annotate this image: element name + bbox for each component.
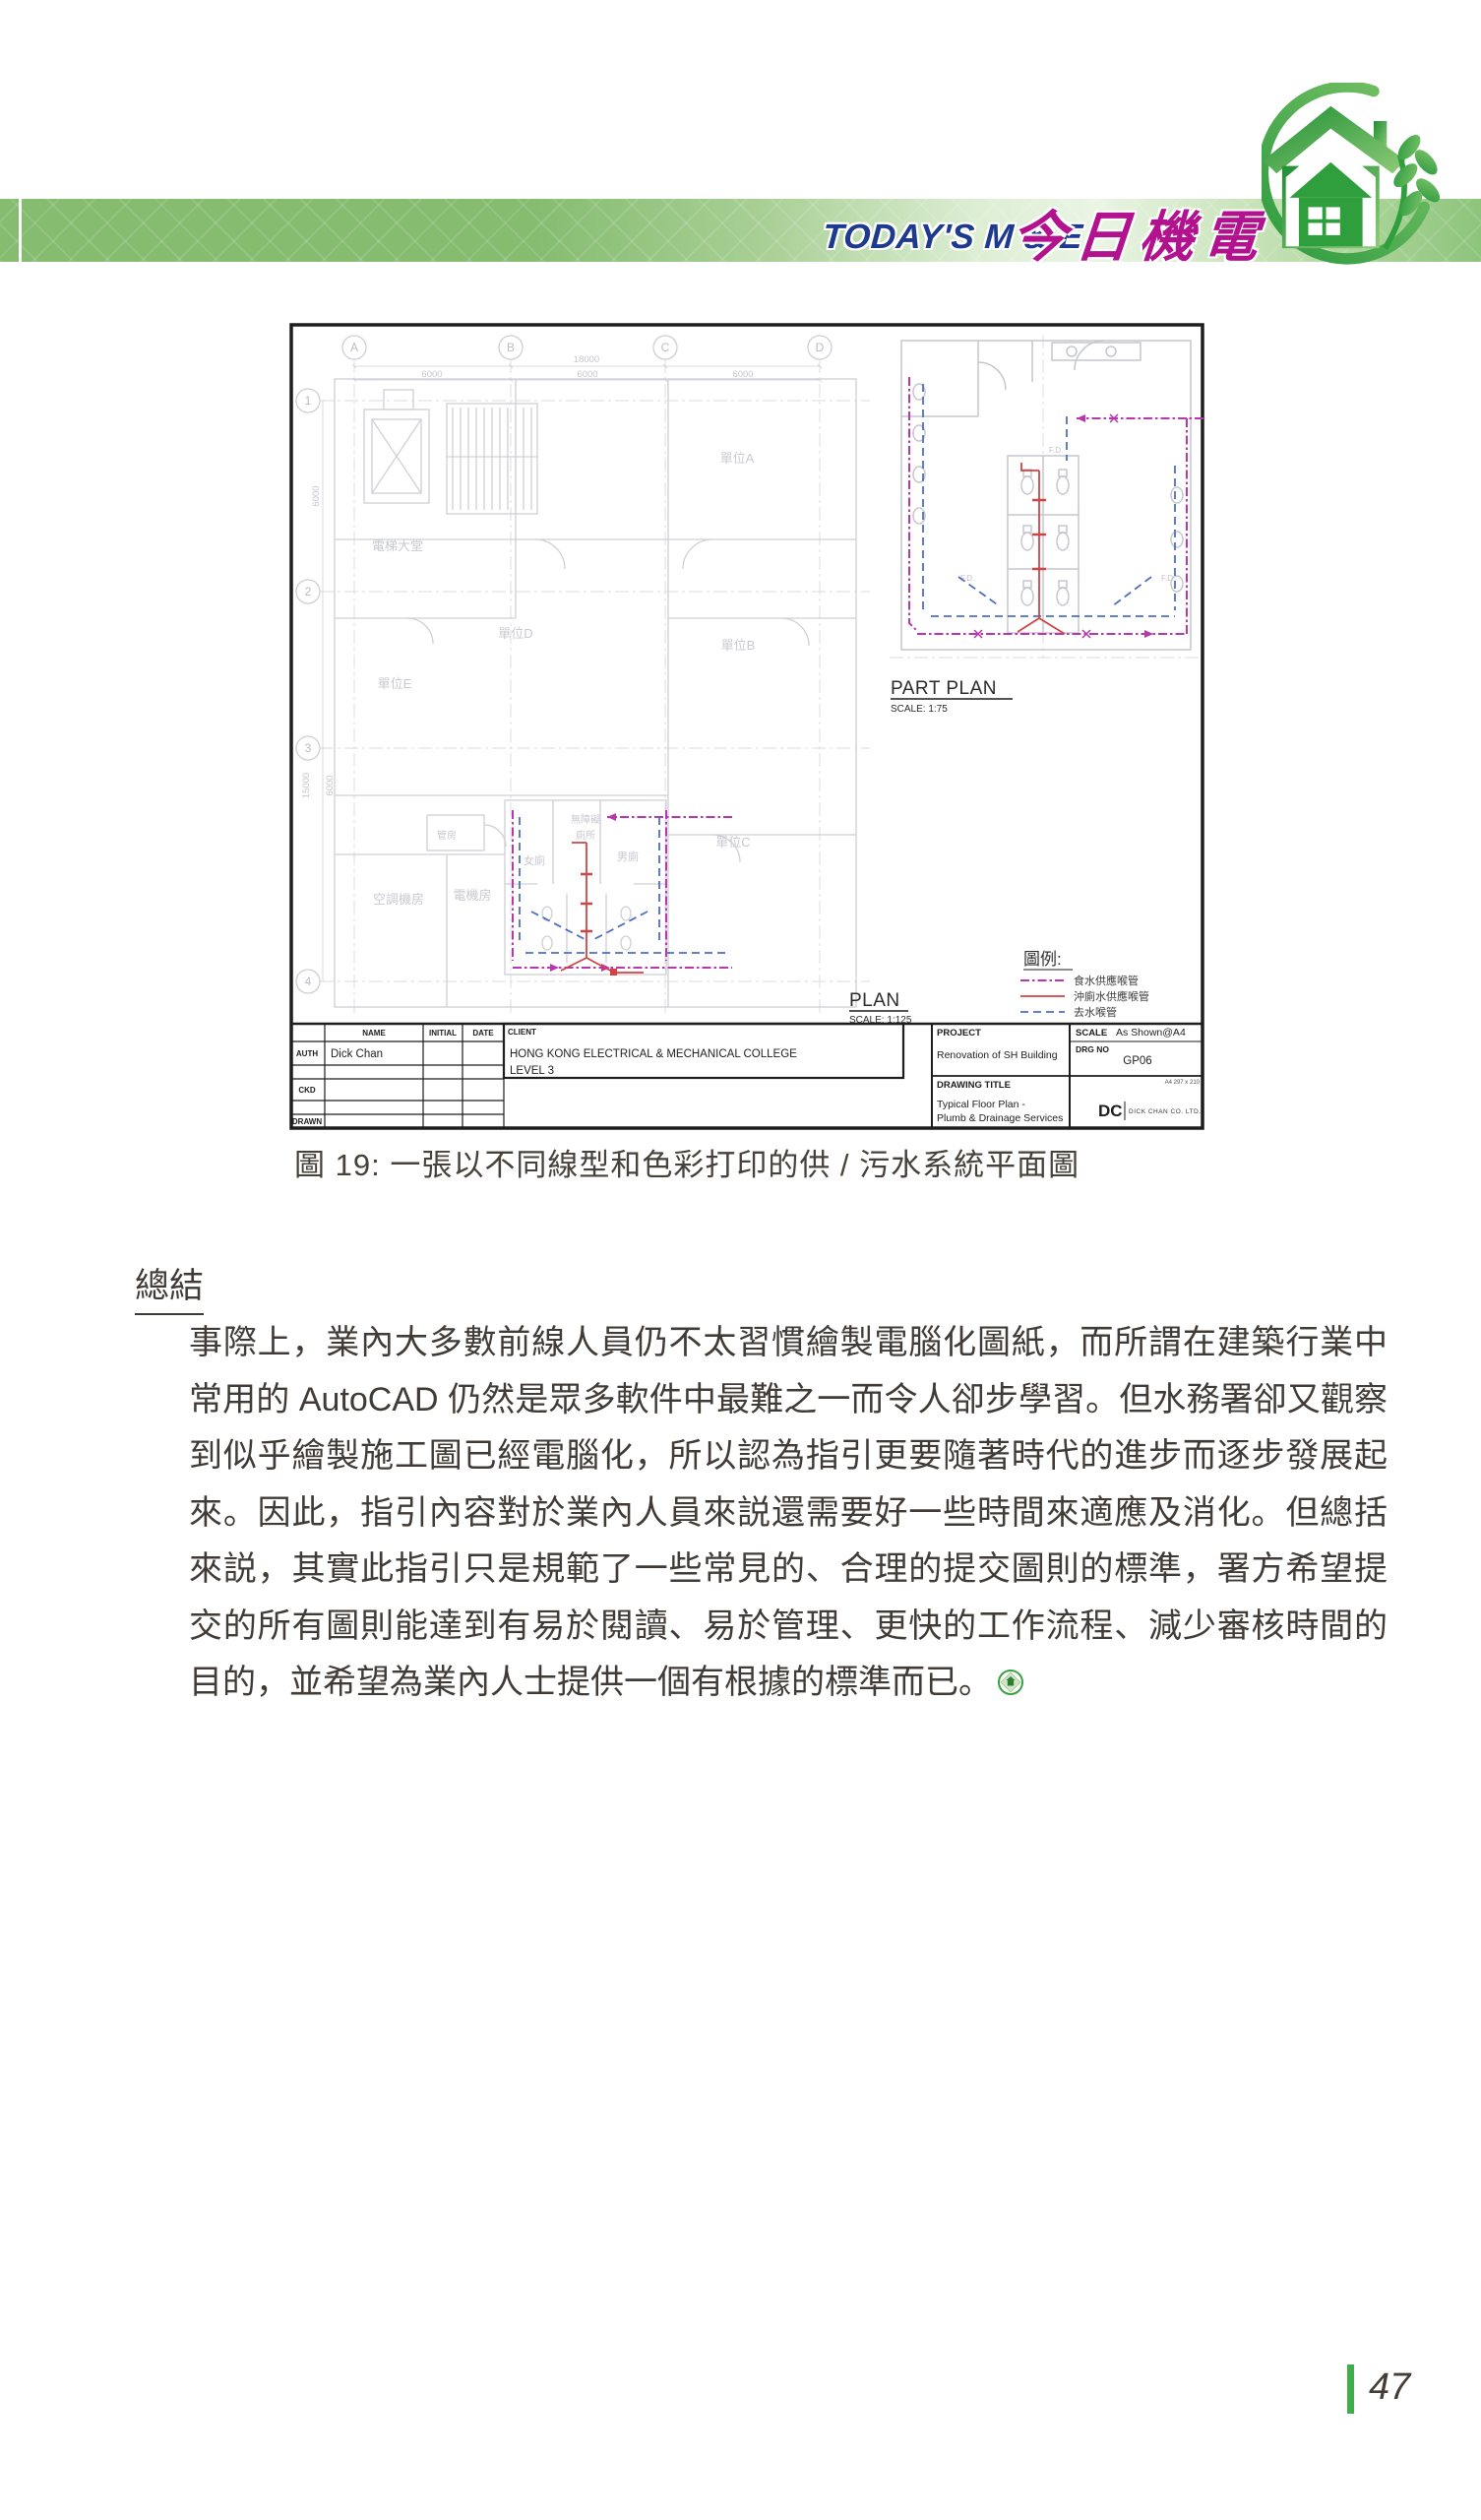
grid-row-4: 4 [305, 975, 312, 988]
tb-name-header: NAME [362, 1029, 386, 1038]
cad-drawing: 18000 6000 6000 6000 6000 15000 6000 A B… [289, 323, 1204, 1130]
legend-title: 圖例: [1023, 950, 1062, 969]
tb-company-name: DICK CHAN CO. LTD. [1129, 1108, 1202, 1115]
room-label-accessible-1: 無障礙 [571, 813, 600, 826]
room-label-unit-b: 單位B [721, 638, 756, 653]
logo-leaves [1389, 131, 1444, 220]
tb-auth-name: Dick Chan [331, 1048, 383, 1060]
tb-scale-value: As Shown@A4 [1116, 1027, 1186, 1039]
summary-text: 事際上，業內大多數前線人員仍不太習慣繪製電腦化圖紙，而所謂在建築行業中常用的 A… [189, 1324, 1388, 1701]
tb-drg-no-header: DRG NO [1076, 1044, 1109, 1054]
grid-row-3: 3 [305, 741, 312, 755]
grid-row-1: 1 [305, 394, 312, 408]
green-house-logo-icon [1262, 83, 1449, 272]
tb-auth-label: AUTH [296, 1049, 318, 1058]
grid-col-d: D [816, 341, 825, 354]
tb-ckd-label: CKD [298, 1086, 316, 1095]
tb-drawing-title-header: DRAWING TITLE [937, 1080, 1011, 1091]
magazine-title-zh: 今日機電 [1008, 193, 1270, 273]
tb-client-line2: LEVEL 3 [510, 1065, 554, 1077]
tb-scale-header: SCALE [1076, 1028, 1107, 1039]
plan-title: PLAN [849, 990, 900, 1011]
room-label-unit-a: 單位A [720, 451, 755, 466]
page-number: 47 [1369, 2366, 1410, 2409]
grid-col-b: B [507, 341, 515, 354]
tb-date-header: DATE [472, 1029, 494, 1038]
figure-caption: 圖 19: 一張以不同線型和色彩打印的供 / 污水系統平面圖 [294, 1140, 1080, 1184]
tb-drawn-label: DRAWN [292, 1117, 322, 1126]
tb-paper-size: A4 297 x 210 [1165, 1080, 1201, 1086]
room-label-elec-room: 電機房 [453, 888, 491, 903]
tb-project-header: PROJECT [937, 1028, 981, 1039]
room-label-ac-plant: 空調機房 [373, 892, 424, 907]
dim-side-total: 15000 [301, 773, 312, 798]
summary-heading: 總結 [135, 1258, 204, 1315]
summary-paragraph: 事際上，業內大多數前線人員仍不太習慣繪製電腦化圖紙，而所謂在建築行業中常用的 A… [189, 1315, 1388, 1712]
grid-col-c: C [661, 341, 670, 354]
part-plan-title: PART PLAN [891, 678, 997, 699]
legend-item-drain: 去水喉管 [1074, 1005, 1117, 1019]
grid-col-a: A [350, 341, 358, 354]
room-label-duct-room: 管房 [437, 829, 457, 842]
legend-item-fresh-water: 食水供應喉管 [1074, 974, 1139, 987]
room-label-male-toilet: 男廁 [617, 850, 639, 863]
tb-initial-header: INITIAL [429, 1029, 457, 1038]
tb-drg-no-value: GP06 [1123, 1055, 1151, 1067]
floor-drain-label-1: F.D. [960, 574, 974, 583]
room-label-unit-c: 單位C [715, 835, 750, 850]
room-label-lift-lobby: 電梯大堂 [372, 538, 423, 553]
dim-total: 18000 [574, 354, 599, 365]
room-label-unit-d: 單位D [498, 626, 532, 641]
magazine-page: TODAY'S M & E 今日機電 [0, 0, 1481, 2520]
room-label-accessible-2: 廁所 [576, 829, 595, 842]
end-of-article-icon [996, 1658, 1025, 1685]
tb-project-value: Renovation of SH Building [937, 1049, 1058, 1061]
floor-drain-label-2: F.D. [1161, 574, 1175, 583]
floor-drain-label-3: F.D. [1049, 446, 1063, 455]
grid-row-2: 2 [305, 585, 312, 598]
tb-client-line1: HONG KONG ELECTRICAL & MECHANICAL COLLEG… [510, 1048, 797, 1060]
room-label-unit-e: 單位E [378, 676, 412, 691]
legend-item-flush-water: 沖廁水供應喉管 [1074, 989, 1149, 1003]
tb-client-header: CLIENT [508, 1028, 536, 1037]
dim-side-bay: 6000 [311, 485, 322, 506]
tb-drawing-title-line2: Plumb & Drainage Services [937, 1112, 1063, 1124]
part-plan-scale: SCALE: 1:75 [891, 704, 948, 715]
tb-company-mark: DC [1098, 1102, 1123, 1120]
header-bar-notch [19, 199, 22, 262]
tb-drawing-title-line1: Typical Floor Plan - [937, 1099, 1025, 1110]
page-number-bar [1347, 2364, 1354, 2414]
room-label-female-toilet: 女廁 [524, 853, 545, 867]
